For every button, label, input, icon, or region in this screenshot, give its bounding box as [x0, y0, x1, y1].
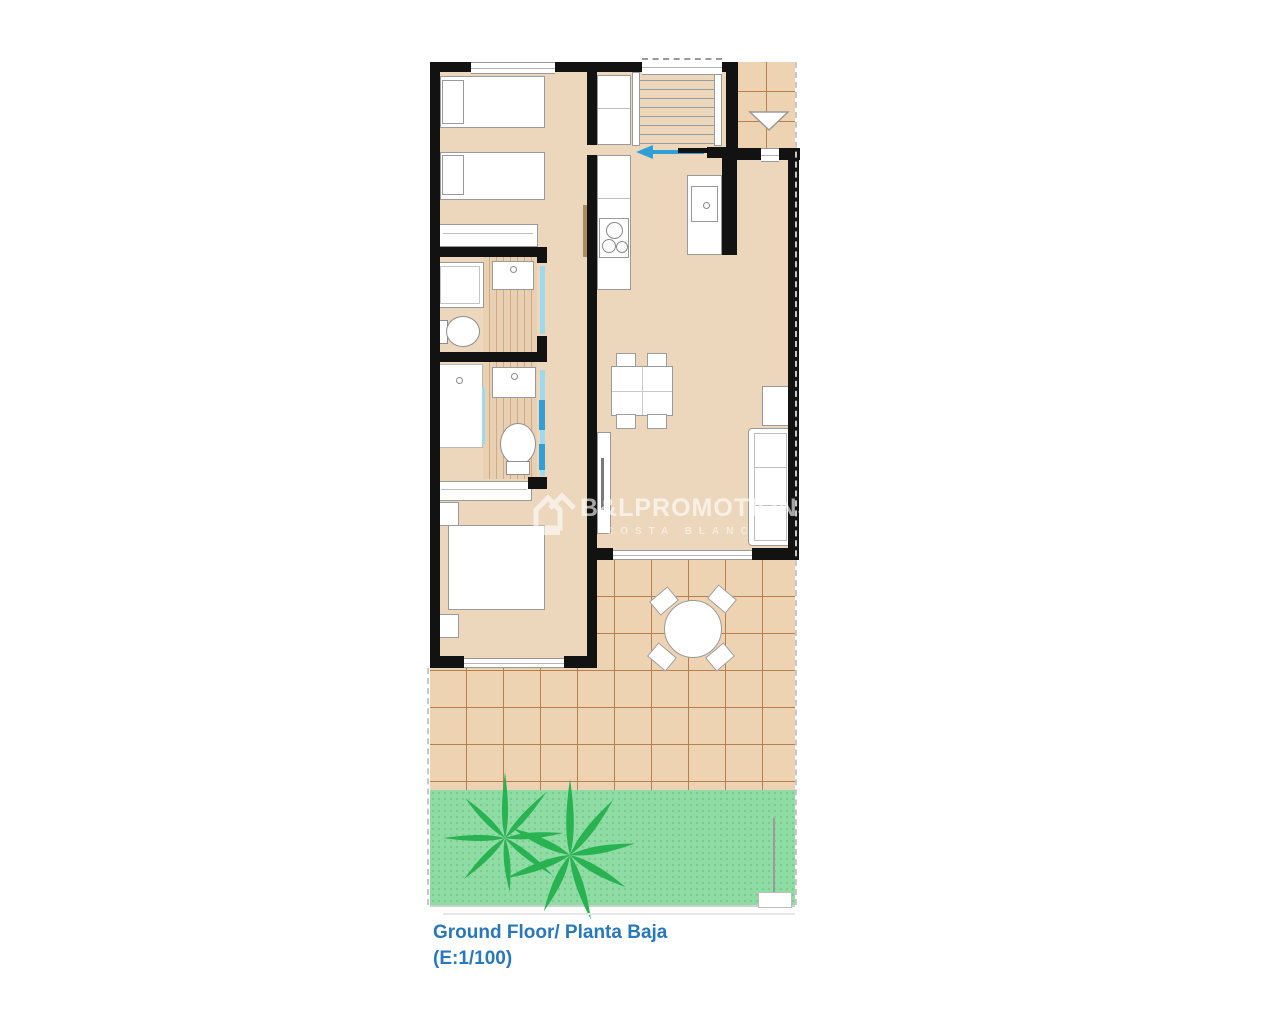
dining-chair-4 — [647, 414, 667, 429]
wall-entrance-right — [726, 62, 738, 155]
bedroom2-double-bed — [448, 525, 545, 610]
bathroom2-shower-glass — [482, 388, 485, 444]
wall-living-bottom-left — [597, 548, 613, 560]
bedroom2-nightstand-bottom — [437, 614, 459, 638]
palm-trees-icon — [420, 760, 680, 920]
caption-line1: Ground Floor/ Planta Baja — [433, 920, 667, 946]
wall-bedroom2-bottom-2 — [564, 656, 597, 668]
stairs — [640, 72, 714, 146]
bathroom2-sliding-door-leaf2 — [539, 444, 545, 470]
watermark-house-icon — [532, 488, 578, 538]
wall-bath-vert-1 — [537, 247, 547, 263]
bedroom1-wardrobe — [438, 224, 538, 247]
wall-left — [430, 62, 440, 668]
bathroom2-toilet — [500, 423, 536, 475]
bathroom1-washbasin — [492, 261, 534, 290]
dining-chair-3 — [616, 414, 636, 429]
watermark-brand: B&LPROMOTIONS — [580, 494, 815, 523]
neighbour-tile-hint — [443, 913, 795, 915]
kitchen-sink — [691, 186, 718, 222]
bathroom2-shower — [433, 364, 483, 448]
bedroom2-wardrobe — [436, 481, 532, 501]
entrance-arrow-icon — [636, 145, 653, 159]
bedroom1-window — [471, 62, 555, 74]
bathroom2-sliding-door-leaf — [539, 400, 545, 430]
entrance-porch-tiles — [737, 62, 795, 150]
wall-bedroom2-right — [587, 432, 597, 668]
kitchen-hob — [599, 218, 629, 258]
watermark: B&LPROMOTIONS COSTA BLANCA — [532, 486, 802, 548]
bedroom1-bed1-pillow — [442, 80, 464, 124]
wall-bath1-top — [430, 247, 545, 257]
plot-boundary-right — [795, 62, 797, 905]
wall-porch-bottom-1 — [735, 148, 761, 160]
bathroom2-washbasin — [492, 367, 536, 398]
floor-plan-page: B&LPROMOTIONS COSTA BLANCA Ground Floor/… — [0, 0, 1280, 1024]
watermark-subtitle: COSTA BLANCA — [606, 526, 769, 537]
stairs-rail-left — [632, 72, 640, 146]
entrance-door-leaf — [678, 148, 716, 153]
porch-triangle-marker — [748, 110, 790, 132]
bedroom2-nightstand-top — [437, 502, 459, 526]
wall-bedroom2-bottom-1 — [430, 656, 464, 668]
garden-drain-line — [773, 818, 775, 896]
wall-kitchen-right-stub — [722, 147, 737, 255]
bathroom1-sliding-door — [540, 266, 545, 334]
wall-top-2 — [555, 62, 642, 72]
bedroom1-bed2-pillow — [442, 155, 464, 195]
dining-table — [611, 366, 673, 416]
bathroom1-shower — [436, 262, 484, 308]
plan-caption: Ground Floor/ Planta Baja (E:1/100) — [433, 920, 667, 971]
living-sliding-door — [613, 550, 752, 560]
wall-living-bottom-right — [752, 548, 799, 560]
wall-living-vert — [587, 360, 597, 432]
garden-gate-notch — [758, 892, 792, 908]
porch-step-gap — [761, 148, 779, 162]
wall-bath2-top — [430, 352, 547, 362]
stairs-rail-right — [714, 72, 722, 146]
wall-kitchen-vert-1 — [587, 62, 597, 145]
caption-line2: (E:1/100) — [433, 946, 667, 972]
wall-bath-vert-2 — [537, 336, 547, 362]
stair-window — [642, 58, 722, 75]
wall-kitchen-vert-2 — [587, 155, 597, 360]
bathroom1-toilet — [436, 316, 480, 346]
kitchen-upper-cabinet — [597, 75, 631, 145]
bedroom2-window — [464, 658, 564, 668]
plot-boundary-left — [427, 668, 429, 905]
